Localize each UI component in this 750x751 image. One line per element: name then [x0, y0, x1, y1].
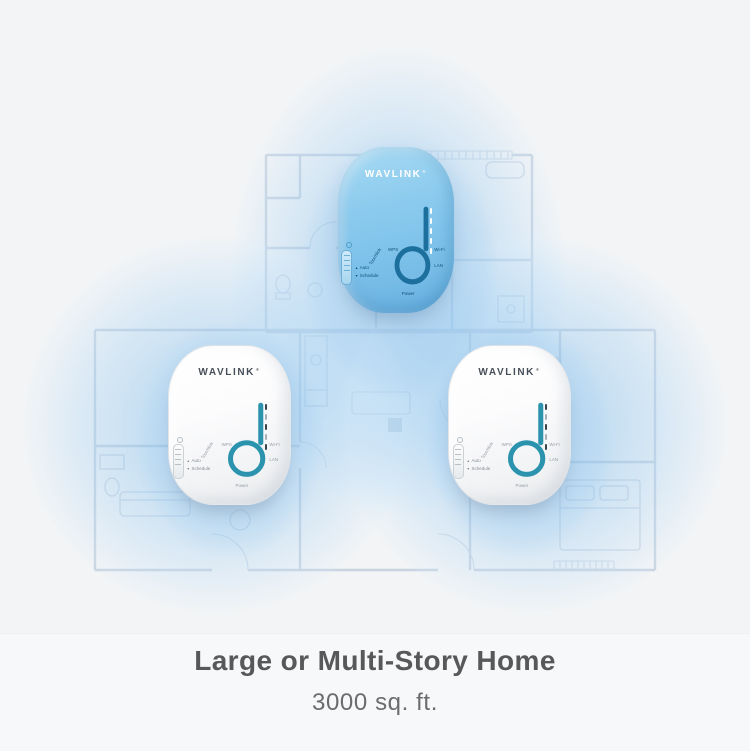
- lan-label: LAN: [549, 457, 558, 462]
- power-label: Power: [402, 291, 415, 296]
- auto-label: Auto: [472, 458, 481, 463]
- mode-switch-labels: ▲Auto ▼Schedule: [187, 457, 211, 473]
- wifi-extender-right: WAVLINK® WPS Touchlink Power Wi-Fi LAN ▲…: [448, 345, 571, 505]
- switch-indicator-icon: [457, 437, 463, 443]
- mode-switch: [341, 250, 352, 285]
- scene: WAVLINK® WPS Touchlink Power Wi-Fi LAN ▲…: [0, 0, 750, 750]
- wifi-label: Wi-Fi: [434, 247, 445, 252]
- schedule-label: Schedule: [192, 466, 211, 471]
- wifi-extender-left: WAVLINK® WPS Touchlink Power Wi-Fi LAN ▲…: [168, 345, 291, 505]
- power-label: Power: [236, 483, 249, 488]
- signal-ring-icon: [449, 346, 570, 504]
- signal-ring-icon: [338, 147, 454, 313]
- wifi-extender-top: WAVLINK® WPS Touchlink Power Wi-Fi LAN ▲…: [338, 147, 454, 313]
- triangle-up-icon: ▲: [467, 459, 470, 463]
- power-label: Power: [516, 483, 529, 488]
- schedule-label: Schedule: [360, 273, 379, 278]
- caption-subtitle: 3000 sq. ft.: [0, 689, 750, 717]
- lan-label: LAN: [269, 457, 278, 462]
- wps-label: WPS: [213, 442, 232, 447]
- mode-switch: [453, 444, 464, 479]
- triangle-up-icon: ▲: [187, 459, 190, 463]
- mode-switch-labels: ▲Auto ▼Schedule: [467, 457, 491, 473]
- wifi-label: Wi-Fi: [549, 442, 560, 447]
- schedule-label: Schedule: [472, 466, 491, 471]
- led-strip: [265, 404, 268, 450]
- auto-label: Auto: [192, 458, 201, 463]
- triangle-up-icon: ▲: [355, 266, 358, 270]
- led-strip: [430, 208, 433, 254]
- triangle-down-icon: ▼: [467, 467, 470, 471]
- mode-switch: [173, 444, 184, 479]
- wifi-label: Wi-Fi: [269, 442, 280, 447]
- wps-label: WPS: [380, 247, 399, 252]
- led-strip: [545, 404, 548, 450]
- switch-indicator-icon: [177, 437, 183, 443]
- triangle-down-icon: ▼: [355, 274, 358, 278]
- auto-label: Auto: [360, 265, 369, 270]
- triangle-down-icon: ▼: [187, 467, 190, 471]
- caption-title: Large or Multi-Story Home: [0, 645, 750, 677]
- mode-switch-labels: ▲Auto ▼Schedule: [355, 264, 379, 280]
- signal-ring-icon: [169, 346, 290, 504]
- wps-label: WPS: [493, 442, 512, 447]
- lan-label: LAN: [434, 263, 443, 268]
